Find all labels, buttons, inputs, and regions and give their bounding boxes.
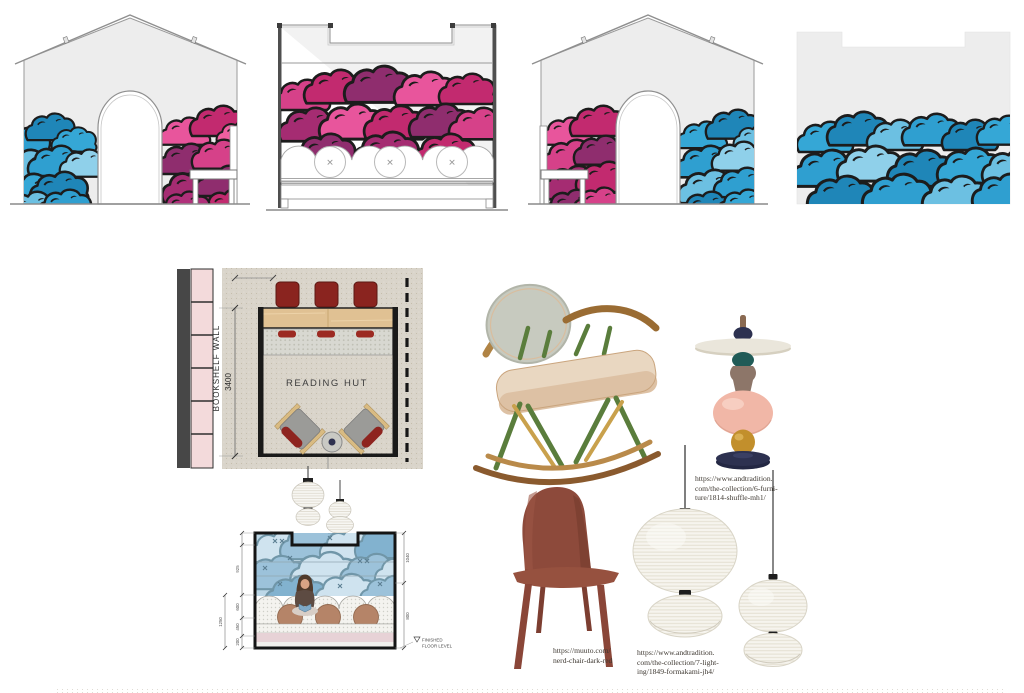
dim-label: 450 [235, 623, 240, 631]
url-line: ing/1849-formakami-jh4/ [637, 667, 755, 677]
elevation-rear-hut [528, 8, 768, 213]
room-label: READING HUT [286, 378, 368, 389]
url-line: com/the-collection/6-furni- [695, 484, 807, 494]
base-band [255, 633, 395, 642]
chair-backrest [479, 277, 577, 371]
counter-cushions [278, 331, 374, 338]
dim-label: 600 [235, 603, 240, 611]
pendant-lamp-sketch-large [292, 466, 324, 526]
dim-label: 200 [235, 638, 240, 646]
bookshelf-wall-label: BOOKSHELF WALL [212, 325, 221, 412]
bookshelf [191, 269, 213, 468]
section-elevation: 925 600 450 200 1250 1040 800 FINISHED F… [218, 466, 468, 693]
formakami-url: https://www.andtradition. com/the-collec… [637, 648, 755, 677]
dim-label: 1040 [405, 553, 410, 563]
shuffle-table-url: https://www.andtradition. com/the-collec… [695, 474, 807, 503]
dim-label: 1250 [218, 617, 223, 627]
reading-chairs-top [276, 282, 377, 307]
url-line: https://www.andtradition. [637, 648, 755, 658]
elevation-front-hut [10, 8, 250, 213]
presentation-board: ✕ ✕ ✕ [0, 0, 1024, 693]
cushion-x-mark: ✕ [448, 158, 456, 168]
floor-plan: BOOKSHELF WALL 3400 [175, 266, 430, 471]
chair-arm [566, 309, 656, 328]
elevation-bench-pink: ✕ ✕ ✕ [262, 20, 512, 220]
floor-level-note: FINISHED FLOOR LEVEL [400, 637, 453, 649]
floor-level-marker [414, 637, 420, 642]
floor-note-line1: FINISHED [422, 638, 443, 643]
cloud-mural-blue [795, 112, 1015, 206]
floor-note-line2: FLOOR LEVEL [422, 644, 453, 649]
cropped-texture-strip [55, 688, 1005, 693]
dim-label: 800 [405, 612, 410, 620]
seat-cushions: ✕ ✕ ✕ [315, 147, 468, 178]
cushion-x-mark: ✕ [326, 158, 334, 168]
dim-label: 925 [235, 565, 240, 573]
wall-strip [177, 269, 190, 468]
dimension-text: 3400 [224, 373, 233, 391]
pendant-lamp-sketch-small [327, 480, 354, 534]
chair-back-legs [536, 581, 592, 633]
elevation-wall-blue [795, 28, 1015, 206]
round-side-table-plan [322, 432, 342, 452]
dims-right: 1040 800 [395, 531, 410, 650]
dims-left: 925 600 450 200 1250 [218, 531, 255, 650]
bench-base [281, 185, 493, 199]
cushion-x-mark: ✕ [386, 158, 394, 168]
bench-front [255, 624, 395, 633]
url-line: ture/1814-shuffle-mh1/ [695, 493, 807, 503]
url-line: nerd-chair-dark-red [553, 656, 643, 666]
url-line: com/the-collection/7-light- [637, 658, 755, 668]
url-line: https://www.andtradition. [695, 474, 807, 484]
nerd-chair-url: https://muuto.com/ nerd-chair-dark-red [553, 646, 643, 665]
url-line: https://muuto.com/ [553, 646, 643, 656]
